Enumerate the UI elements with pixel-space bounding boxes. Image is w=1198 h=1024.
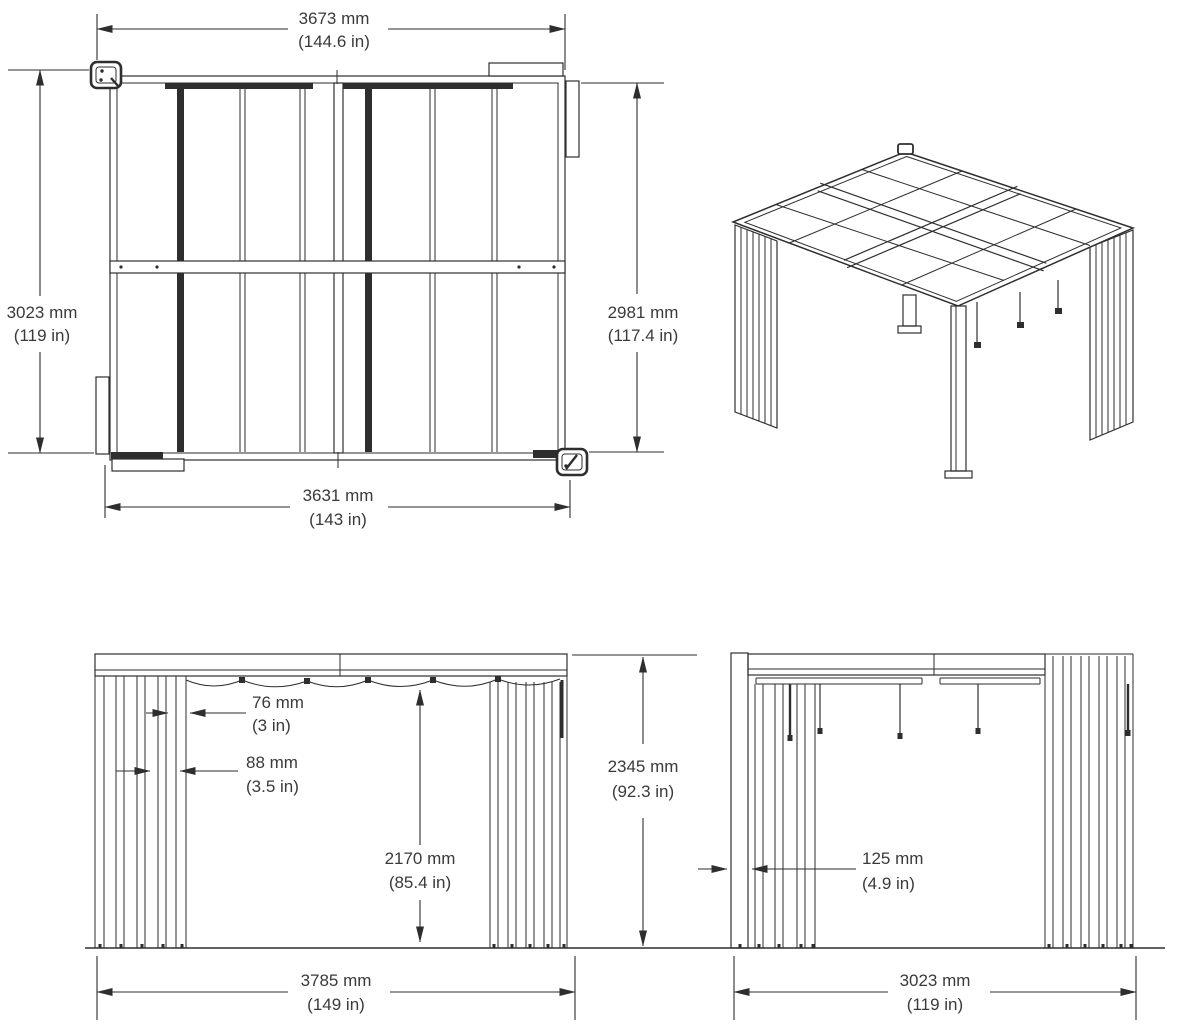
- technical-drawing-page: 3673 mm (144.6 in) 3023 mm (119 in) 2981…: [0, 0, 1198, 1024]
- dim-plan-width-bottom-in: (143 in): [309, 510, 367, 529]
- iso-front-post: [945, 306, 972, 478]
- dim-plan-width-top: 3673 mm (144.6 in): [97, 9, 565, 70]
- dim-plan-depth-right: 2981 mm (117.4 in): [581, 83, 678, 452]
- dim-plan-depth-right-in: (117.4 in): [608, 326, 679, 345]
- iso-roof-outline: [733, 152, 1133, 306]
- iso-roof-inner-frame: [745, 157, 1121, 302]
- dim-front-clear-height: 2170 mm (85.4 in): [385, 690, 456, 942]
- side-hanging-rods: [790, 684, 1128, 741]
- front-right-slat-panel: [490, 676, 567, 948]
- dim-front-overall-width: 3785 mm (149 in): [97, 956, 575, 1020]
- side-header-beam: [748, 654, 1045, 675]
- iso-roof-cross-beam-a: [818, 183, 1047, 271]
- dim-plan-depth-left-in: (119 in): [14, 326, 70, 345]
- plan-post-cap-bottom-right: [557, 449, 587, 475]
- plan-mid-beam: [110, 261, 565, 273]
- dim-front-overall-height-in: (92.3 in): [612, 782, 674, 801]
- plan-bottom-strip-left: [111, 452, 163, 459]
- pergola-dimension-drawing: 3673 mm (144.6 in) 3023 mm (119 in) 2981…: [0, 0, 1198, 1024]
- dim-front-slat-width: 76 mm (3 in): [146, 693, 304, 735]
- dim-side-post-width-mm: 125 mm: [862, 849, 923, 868]
- iso-back-post-cap: [898, 144, 913, 154]
- side-header-lines: [748, 654, 1133, 669]
- dim-front-overall-width-in: (149 in): [307, 995, 365, 1014]
- front-header-beam: [95, 654, 567, 676]
- side-right-slat-panel: [1045, 654, 1133, 948]
- front-left-slat-panel: [95, 676, 186, 948]
- dim-side-overall-width-in: (119 in): [907, 995, 963, 1014]
- plan-tab-bottom-left: [112, 459, 184, 471]
- front-canopy-hooks: [242, 676, 498, 684]
- iso-hanging-rods: [974, 280, 1062, 348]
- plan-post-cap-top-left: [91, 62, 121, 88]
- dim-side-overall-width: 3023 mm (119 in): [734, 956, 1136, 1020]
- plan-view: 3673 mm (144.6 in) 3023 mm (119 in) 2981…: [7, 9, 679, 529]
- dim-front-slat-spacing: 88 mm (3.5 in): [116, 753, 299, 796]
- dim-side-post-width-in: (4.9 in): [862, 874, 915, 893]
- plan-top-strip-left: [165, 83, 313, 89]
- plan-tab-left: [96, 377, 109, 454]
- dim-front-slat-spacing-mm: 88 mm: [246, 753, 298, 772]
- dim-plan-width-bottom-mm: 3631 mm: [303, 486, 374, 505]
- dim-plan-width-top-in: (144.6 in): [298, 32, 370, 51]
- side-curtain-rails: [756, 678, 1040, 684]
- plan-tab-right: [566, 81, 579, 157]
- dim-front-slat-spacing-in: (3.5 in): [246, 777, 299, 796]
- dim-plan-depth-left: 3023 mm (119 in): [7, 70, 94, 453]
- dim-front-clear-height-mm: 2170 mm: [385, 849, 456, 868]
- dim-front-overall-height: 2345 mm (92.3 in): [572, 655, 697, 946]
- iso-right-slat-wall: [1090, 230, 1133, 440]
- plan-tab-top-right: [489, 63, 563, 76]
- isometric-view: [733, 144, 1133, 478]
- plan-top-strip-right: [343, 83, 513, 89]
- dim-front-overall-width-mm: 3785 mm: [301, 971, 372, 990]
- dim-front-overall-height-mm: 2345 mm: [608, 757, 679, 776]
- dim-plan-width-bottom: 3631 mm (143 in): [105, 465, 570, 529]
- side-elevation-view: 125 mm (4.9 in) 3023 mm (119 in): [698, 653, 1136, 1020]
- dim-front-slat-width-mm: 76 mm: [252, 693, 304, 712]
- dim-plan-width-top-mm: 3673 mm: [299, 9, 370, 28]
- iso-back-post: [898, 295, 921, 333]
- dim-plan-depth-left-mm: 3023 mm: [7, 303, 78, 322]
- iso-left-slat-wall: [735, 225, 777, 428]
- iso-roof-cross-beam-b: [844, 186, 1021, 267]
- side-left-post: [731, 653, 748, 948]
- dim-plan-depth-right-mm: 2981 mm: [608, 303, 679, 322]
- dim-front-clear-height-in: (85.4 in): [389, 873, 451, 892]
- dim-side-overall-width-mm: 3023 mm: [900, 971, 971, 990]
- dim-side-post-width: 125 mm (4.9 in): [698, 849, 923, 893]
- side-left-slat-panel: [755, 684, 815, 948]
- dim-front-slat-width-in: (3 in): [252, 716, 291, 735]
- front-elevation-view: 76 mm (3 in) 88 mm (3.5 in) 2170 mm (85.…: [95, 654, 697, 1020]
